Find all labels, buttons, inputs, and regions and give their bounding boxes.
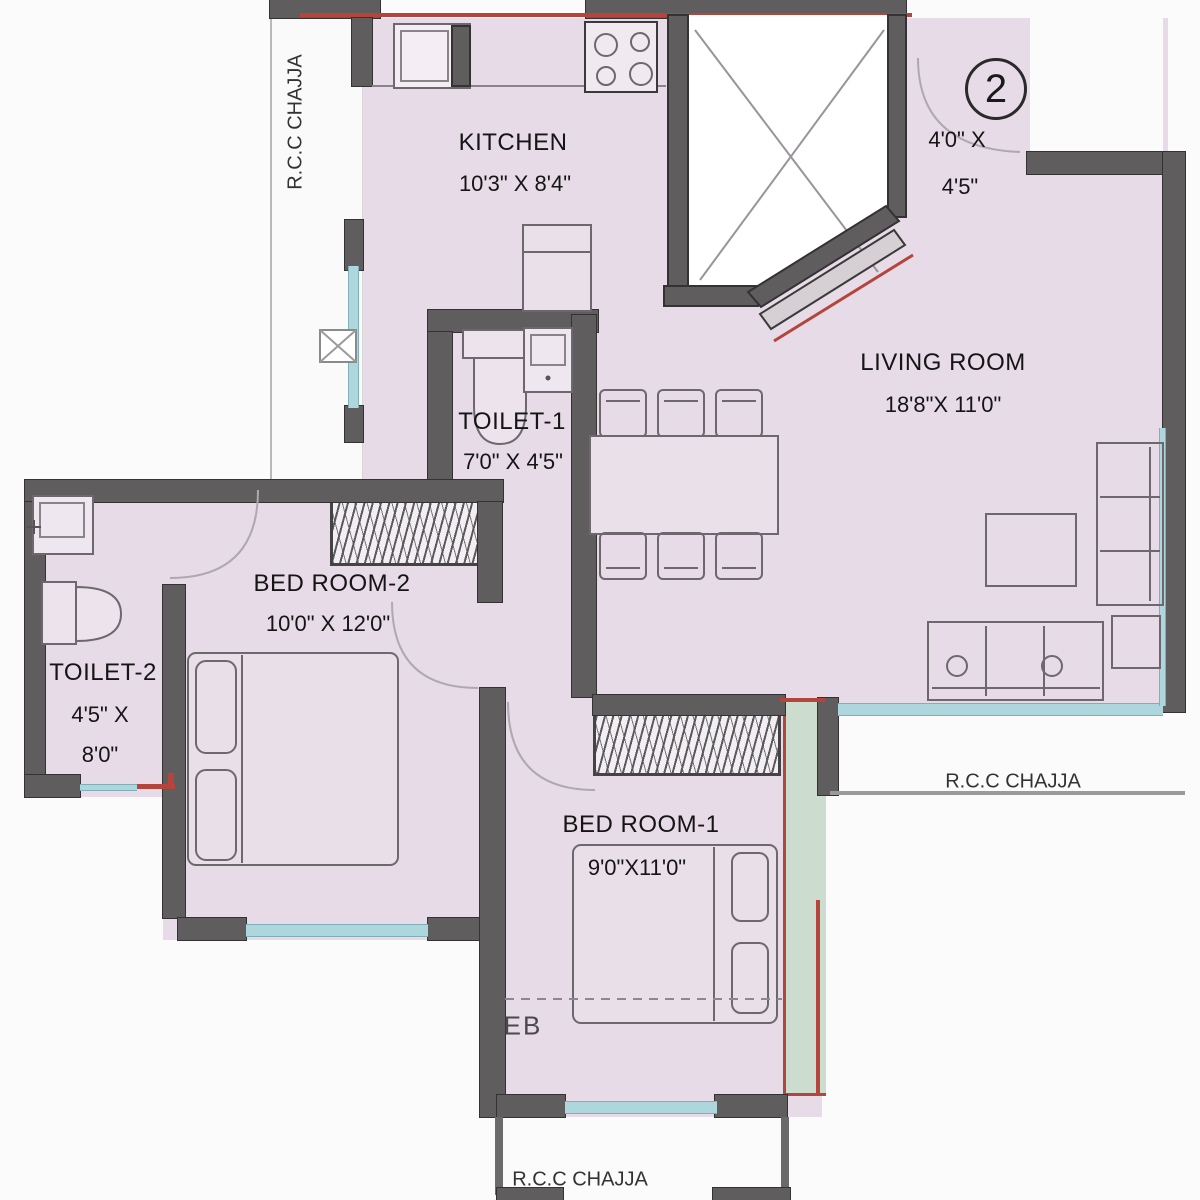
bedroom1-dims: 9'0"X11'0" bbox=[588, 855, 686, 881]
chajja-label-left: R.C.C CHAJJA bbox=[285, 54, 308, 190]
eb-label: EB bbox=[504, 1011, 543, 1042]
balcony-dims-line2: 4'5" bbox=[942, 174, 978, 200]
sink-icon bbox=[394, 24, 470, 88]
toilet1-dims: 7'0" X 4'5" bbox=[463, 449, 563, 475]
balcony-dims-line1: 4'0" X bbox=[928, 127, 985, 153]
coffee-table-icon bbox=[986, 514, 1076, 586]
furniture-layer bbox=[0, 0, 1200, 1200]
kitchen-platform bbox=[523, 225, 591, 311]
sofa-icon bbox=[1097, 443, 1163, 605]
side-table-icon bbox=[1112, 616, 1160, 668]
toilet2-dims-line2: 8'0" bbox=[82, 742, 118, 768]
bed-icon bbox=[188, 653, 398, 865]
living-room-dims: 18'8"X 11'0" bbox=[885, 392, 1002, 418]
duct-icon bbox=[320, 330, 356, 362]
floor-plan: 2 KITCHEN 10'3" X 8'4" LIVING ROOM 18'8"… bbox=[0, 0, 1200, 1200]
washbasin-icon bbox=[524, 328, 572, 392]
bedroom2-label: BED ROOM-2 bbox=[253, 570, 410, 598]
toilet2-label: TOILET-2 bbox=[49, 659, 157, 687]
sofa-icon bbox=[928, 622, 1103, 700]
toilet1-label: TOILET-1 bbox=[458, 408, 566, 436]
washbasin-icon bbox=[26, 496, 93, 554]
door-arc bbox=[508, 702, 595, 790]
stove-icon bbox=[585, 22, 657, 92]
chajja-label-right: R.C.C CHAJJA bbox=[945, 771, 1081, 794]
bedroom1-label: BED ROOM-1 bbox=[562, 811, 719, 839]
bedroom2-dims: 10'0" X 12'0" bbox=[266, 611, 390, 637]
unit-number-badge: 2 bbox=[965, 58, 1027, 120]
kitchen-dims: 10'3" X 8'4" bbox=[459, 171, 571, 197]
toilet2-dims-line1: 4'5" X bbox=[71, 702, 128, 728]
door-arc bbox=[170, 490, 258, 578]
dining-set bbox=[590, 390, 778, 579]
kitchen-label: KITCHEN bbox=[459, 129, 568, 157]
living-room-label: LIVING ROOM bbox=[860, 349, 1026, 377]
wc-icon bbox=[42, 582, 121, 644]
door-arc bbox=[392, 602, 478, 688]
chajja-label-bottom: R.C.C CHAJJA bbox=[512, 1169, 648, 1192]
